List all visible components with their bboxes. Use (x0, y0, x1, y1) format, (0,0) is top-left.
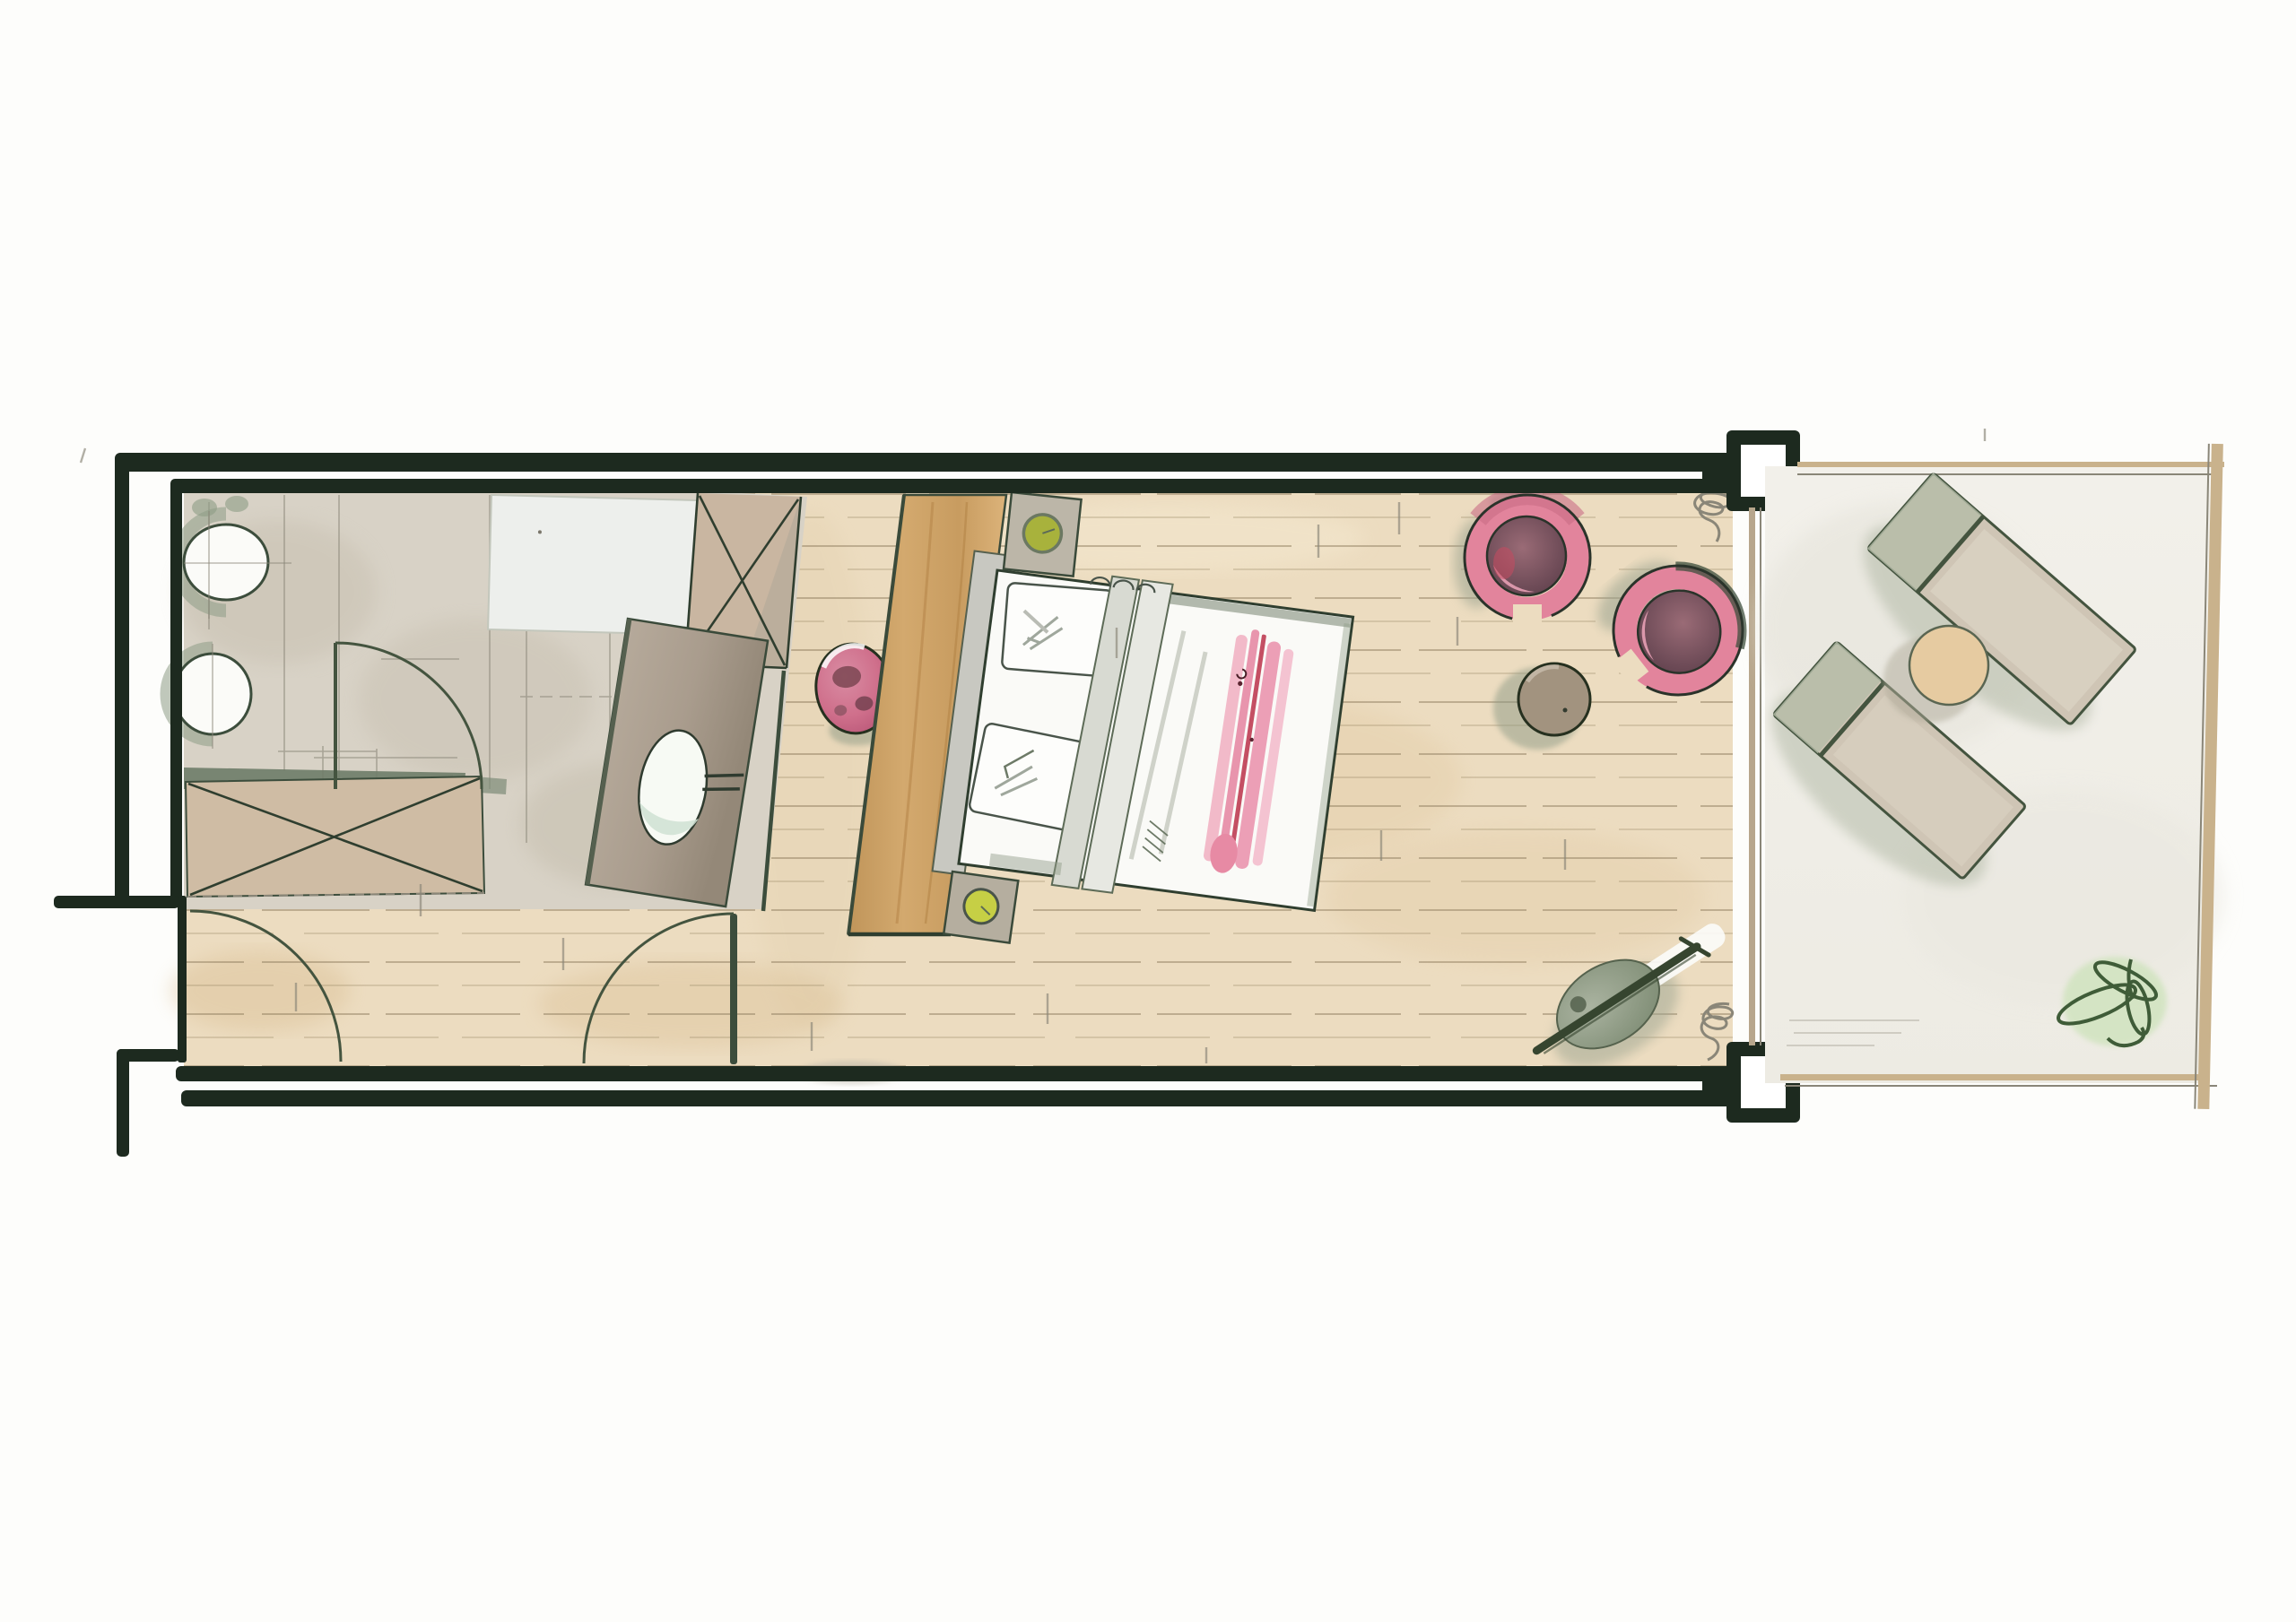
terrace-border-bottom (1780, 1074, 2209, 1080)
wall-corner-lower-left (117, 1049, 129, 1157)
wardrobe-group (186, 776, 484, 897)
side-table (1518, 664, 1590, 735)
plant-wash (2063, 957, 2167, 1046)
chair-opening (1513, 604, 1542, 628)
nightstand-top (1004, 492, 1082, 577)
wall-bottom-outer (181, 1090, 1738, 1106)
toilet (184, 525, 268, 600)
floor-plan-canvas (0, 0, 2296, 1622)
wall-left-outer (115, 453, 129, 901)
wall-top-outer (115, 453, 1729, 472)
lounger-table (1909, 626, 1988, 705)
terrace-border-top (1797, 462, 2224, 467)
bath-wash (359, 619, 592, 780)
toilet-tank-blob (225, 496, 248, 512)
entry-door-leaf (178, 896, 187, 1063)
entry-jamb-top (54, 896, 179, 908)
seat-smudge (1493, 547, 1515, 579)
nightstand-bottom (944, 872, 1018, 943)
pencil-dot (1563, 708, 1568, 713)
bathtub-group (488, 495, 709, 635)
wall-bottom-inner (176, 1066, 1731, 1081)
glass-wall (1749, 507, 1761, 1045)
floor-plan-drawing (0, 0, 2296, 1622)
terrace-zone (1742, 444, 2224, 1109)
toilet-tank-blob (192, 499, 217, 516)
wall-left-inner (170, 479, 182, 907)
bath-door-leaf (730, 914, 737, 1064)
wall-top-inner (172, 479, 1729, 493)
bathtub (488, 495, 709, 635)
glass-frame (1749, 507, 1755, 1045)
